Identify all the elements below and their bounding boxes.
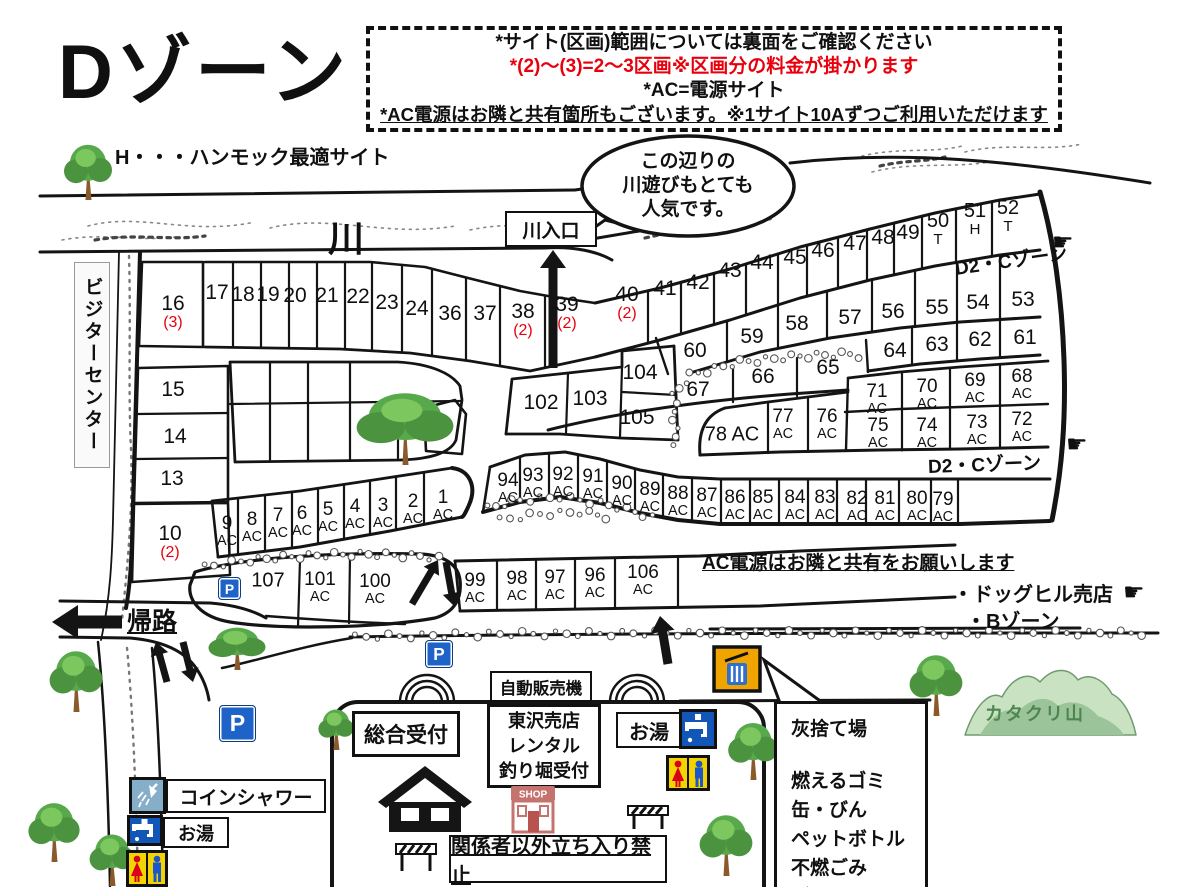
east-shop-line: レンタル [508, 734, 580, 759]
site-5: 5AC [318, 500, 338, 534]
site-88: 88AC [667, 484, 688, 518]
site-3: 3AC [373, 496, 393, 530]
site-79: 79AC [932, 490, 953, 524]
site-40: 40(2) [615, 284, 638, 322]
ac-share-note: AC電源はお隣と共有をお願いします [702, 548, 1014, 575]
site-83: 83AC [814, 488, 835, 522]
hot-water-sign: お湯 [163, 817, 229, 848]
faucet-icon [679, 709, 717, 754]
ash-item: ダンボール [791, 883, 925, 887]
note-line: *(2)〜(3)=2〜3区画※区画分の料金が掛かります [510, 55, 919, 79]
site-99: 99AC [464, 571, 485, 605]
doghill-shop-label: ・ドッグヒル売店 ☛ [953, 578, 1145, 607]
site-71: 71AC [866, 382, 887, 416]
east-shop-sign: 東沢売店 レンタル 釣り堀受付 [487, 704, 601, 788]
river-entrance-sign: 川入口 [505, 211, 597, 247]
site-68: 68AC [1011, 367, 1032, 401]
site-46: 46 [811, 240, 834, 262]
site-48: 48 [871, 227, 894, 249]
bubble-line: 川遊びもとても [622, 174, 753, 198]
site-107: 107 [251, 571, 284, 592]
site-20: 20 [283, 285, 306, 307]
site-6: 6AC [292, 504, 312, 538]
vending-machine-sign: 自動販売機 [490, 671, 592, 702]
site-102: 102 [523, 392, 558, 414]
site-82: 82AC [846, 489, 867, 523]
site-62: 62 [968, 329, 991, 351]
page-title: Dゾーン [58, 10, 349, 120]
pointing-finger-icon: ☛ [1066, 430, 1088, 459]
site-73: 73AC [966, 413, 987, 447]
note-line: *AC=電源サイト [644, 79, 785, 103]
faucet-icon [127, 815, 163, 851]
site-78AC: 78 AC [705, 425, 759, 446]
doghill-text: ・ドッグヒル売店 [953, 578, 1113, 607]
site-87: 87AC [696, 486, 717, 520]
site-50: 50T [927, 211, 949, 247]
d2c-zone-label: D2・Cゾーン [928, 448, 1042, 479]
site-45: 45 [783, 247, 806, 269]
ash-disposal-box: 灰捨て場 燃えるゴミ缶・びんペットボトル不燃ごみダンボール [774, 701, 928, 887]
toilet-icon [666, 755, 710, 796]
shop-icon: SHOP [504, 784, 562, 839]
site-85: 85AC [752, 488, 773, 522]
shower-icon [129, 777, 166, 819]
house-icon [378, 766, 472, 837]
note-line: *サイト(区画)範囲については裏面をご確認ください [495, 31, 932, 55]
site-19: 19 [256, 284, 279, 306]
pointing-finger-icon: ☛ [1123, 578, 1145, 607]
site-23: 23 [375, 292, 398, 314]
parking-icon: P [219, 705, 256, 742]
b-zone-label: ・Bゾーン [966, 605, 1059, 634]
bubble-line: 人気です。 [622, 198, 753, 222]
site-96: 96AC [584, 566, 605, 600]
return-route-label: 帰路 [127, 602, 177, 638]
trash-bin-icon [712, 645, 762, 698]
site-24: 24 [405, 298, 428, 320]
site-16: 16(3) [161, 293, 184, 331]
site-67: 67 [686, 379, 709, 401]
site-15: 15 [161, 379, 184, 401]
site-93: 93AC [522, 466, 543, 500]
mountain-label: カタクリ山 [985, 700, 1085, 726]
site-106: 106AC [627, 563, 659, 597]
site-9: 9AC [217, 514, 237, 548]
east-shop-line: 釣り堀受付 [499, 759, 589, 784]
restricted-sign: 関係者以外立ち入り禁止 [449, 835, 667, 883]
site-14: 14 [163, 426, 186, 448]
site-39: 39(2) [555, 294, 578, 332]
site-58: 58 [785, 313, 808, 335]
site-37: 37 [473, 303, 496, 325]
site-1: 1AC [433, 488, 453, 522]
reception-sign: 総合受付 [352, 711, 460, 757]
site-63: 63 [925, 334, 948, 356]
coin-shower-sign: コインシャワー [166, 779, 326, 813]
site-55: 55 [925, 297, 948, 319]
site-81: 81AC [874, 489, 895, 523]
ash-items: 燃えるゴミ缶・びんペットボトル不燃ごみダンボール [791, 767, 925, 887]
site-77: 77AC [772, 407, 793, 441]
site-65: 65 [816, 357, 839, 379]
site-51: 51H [964, 201, 986, 237]
site-61: 61 [1013, 327, 1036, 349]
site-86: 86AC [724, 488, 745, 522]
site-80: 80AC [906, 489, 927, 523]
site-64: 64 [883, 340, 906, 362]
ash-item: 缶・びん [791, 796, 925, 825]
pointing-finger-icon: ☛ [1052, 228, 1074, 257]
site-21: 21 [315, 285, 338, 307]
site-75: 75AC [867, 416, 888, 450]
site-72: 72AC [1011, 410, 1032, 444]
visitor-center-label: ビジターセンター [74, 262, 110, 468]
site-41: 41 [653, 278, 676, 300]
river-label: 川 [328, 210, 364, 262]
toilet-icon [126, 850, 168, 887]
site-57: 57 [838, 307, 861, 329]
site-8: 8AC [242, 510, 262, 544]
parking-icon: P [425, 640, 453, 668]
site-54: 54 [966, 292, 989, 314]
site-2: 2AC [403, 492, 423, 526]
site-92: 92AC [552, 465, 573, 499]
site-91: 91AC [582, 467, 603, 501]
site-76: 76AC [816, 407, 837, 441]
ash-title: 灰捨て場 [791, 714, 925, 741]
site-69: 69AC [964, 371, 985, 405]
shop-sign-text: SHOP [519, 790, 548, 801]
speech-bubble: この辺りの 川遊びもとても 人気です。 [622, 150, 753, 222]
site-100: 100AC [359, 572, 391, 606]
site-60: 60 [683, 340, 706, 362]
site-4: 4AC [345, 497, 365, 531]
barrier-icon [626, 804, 670, 835]
site-7: 7AC [268, 506, 288, 540]
site-97: 97AC [544, 568, 565, 602]
site-59: 59 [740, 326, 763, 348]
site-94: 94AC [497, 471, 518, 505]
site-105: 105 [619, 407, 654, 429]
parking-icon: P [218, 577, 241, 600]
site-17: 17 [205, 282, 228, 304]
ash-item: 燃えるゴミ [791, 767, 925, 796]
site-43: 43 [718, 260, 741, 282]
site-44: 44 [750, 252, 773, 274]
site-53: 53 [1011, 289, 1034, 311]
site-38: 38(2) [511, 301, 534, 339]
site-56: 56 [881, 301, 904, 323]
hammock-legend: H・・・ハンモック最適サイト [115, 141, 389, 170]
site-13: 13 [160, 468, 183, 490]
hot-water-sign: お湯 [616, 712, 682, 748]
site-47: 47 [843, 233, 866, 255]
notes-box: *サイト(区画)範囲については裏面をご確認ください *(2)〜(3)=2〜3区画… [366, 26, 1062, 132]
site-36: 36 [438, 303, 461, 325]
site-18: 18 [231, 284, 254, 306]
site-98: 98AC [506, 569, 527, 603]
ash-item: ペットボトル [791, 825, 925, 854]
site-104: 104 [622, 362, 657, 384]
site-101: 101AC [304, 570, 336, 604]
site-74: 74AC [916, 416, 937, 450]
east-shop-line: 東沢売店 [508, 709, 580, 734]
site-103: 103 [572, 388, 607, 410]
note-line: *AC電源はお隣と共有箇所もございます。※1サイト10Aずつご利用いただけます [380, 103, 1048, 127]
site-66: 66 [751, 366, 774, 388]
bubble-line: この辺りの [622, 150, 753, 174]
site-84: 84AC [784, 488, 805, 522]
site-89: 89AC [639, 480, 660, 514]
campground-map: Dゾーン *サイト(区画)範囲については裏面をご確認ください *(2)〜(3)=… [0, 0, 1200, 887]
site-52: 52T [997, 198, 1019, 234]
site-70: 70AC [916, 377, 937, 411]
ash-item: 不燃ごみ [791, 854, 925, 883]
site-42: 42 [686, 272, 709, 294]
site-49: 49 [896, 222, 919, 244]
barrier-icon [394, 841, 438, 878]
site-90: 90AC [611, 474, 632, 508]
site-22: 22 [346, 286, 369, 308]
site-10: 10(2) [158, 523, 181, 561]
